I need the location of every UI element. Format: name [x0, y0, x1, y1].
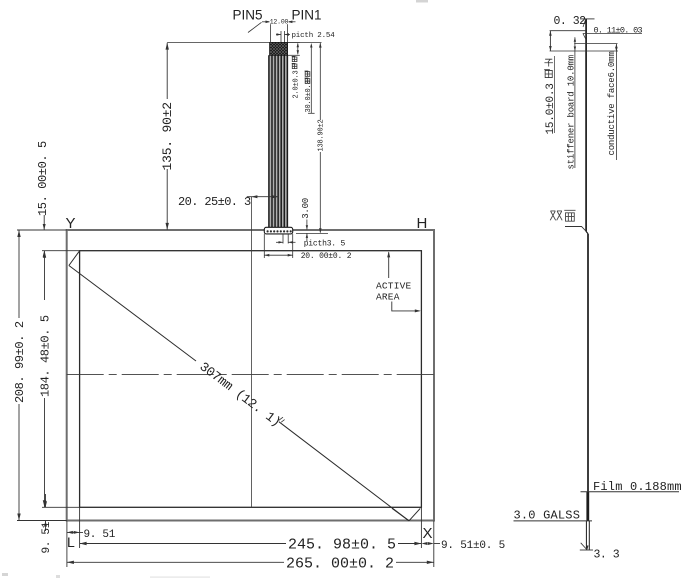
svg-text:307mm (12. 1): 307mm (12. 1)	[197, 359, 284, 430]
svg-text:20. 25±0. 3: 20. 25±0. 3	[178, 195, 251, 209]
svg-text:9. 51: 9. 51	[84, 529, 116, 541]
svg-text:conductive face6.0mm: conductive face6.0mm	[607, 51, 617, 155]
svg-text:0. 32: 0. 32	[554, 15, 587, 28]
svg-text:L: L	[67, 534, 75, 550]
svg-text:265. 00±0. 2: 265. 00±0. 2	[286, 555, 394, 572]
svg-text:0. 11±0. 03: 0. 11±0. 03	[594, 25, 643, 35]
svg-text:picth 2.54: picth 2.54	[292, 32, 336, 40]
svg-text:9. 51: 9. 51	[41, 521, 53, 553]
svg-text:138.90±2: 138.90±2	[318, 119, 326, 151]
svg-text:ACTIVE: ACTIVE	[376, 280, 412, 291]
svg-text:184. 48±0. 5: 184. 48±0. 5	[39, 315, 53, 397]
svg-text:20. 00±0. 2: 20. 00±0. 2	[301, 252, 352, 261]
svg-text:12.00: 12.00	[270, 19, 289, 26]
svg-text:AREA: AREA	[376, 291, 400, 302]
svg-text:245. 98±0. 5: 245. 98±0. 5	[288, 536, 396, 553]
svg-text:2.0±0.3: 2.0±0.3	[292, 70, 300, 98]
svg-text:3. 3: 3. 3	[594, 548, 620, 561]
svg-text:picth3. 5: picth3. 5	[304, 239, 346, 248]
svg-text:9. 51±0. 5: 9. 51±0. 5	[441, 540, 505, 552]
svg-text:Y: Y	[66, 215, 76, 232]
svg-text:135. 90±2: 135. 90±2	[160, 102, 175, 170]
svg-text:15. 00±0. 5: 15. 00±0. 5	[36, 141, 50, 216]
svg-text:15.0±0.3: 15.0±0.3	[545, 83, 557, 134]
svg-text:208. 99±0. 2: 208. 99±0. 2	[13, 321, 27, 403]
svg-text:X: X	[423, 525, 433, 542]
svg-text:PIN5: PIN5	[233, 8, 263, 23]
svg-text:30.0±0.3: 30.0±0.3	[305, 80, 313, 112]
svg-text:PIN1: PIN1	[292, 7, 322, 22]
svg-text:3.00: 3.00	[301, 198, 311, 219]
svg-text:stiffener board 10.0mm: stiffener board 10.0mm	[566, 55, 576, 169]
svg-text:H: H	[417, 215, 428, 232]
